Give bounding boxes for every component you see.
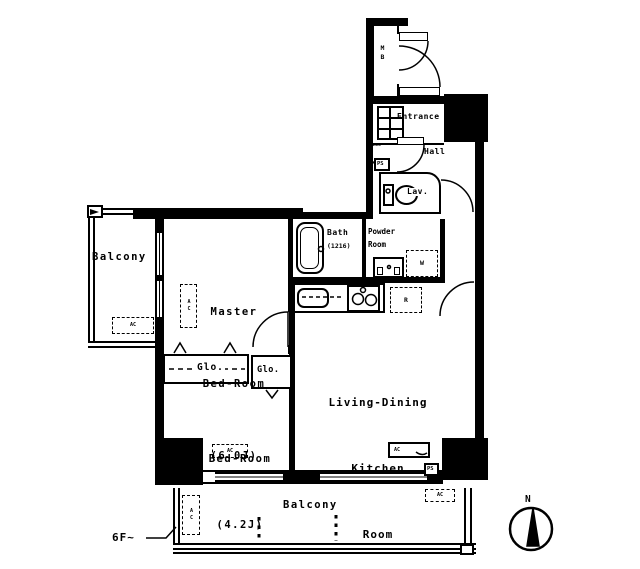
shoes-box-label: Shoes Box — [366, 130, 381, 178]
ac-unit-box: AC — [112, 317, 154, 334]
powder-room-line2: Room — [368, 241, 386, 249]
bathtub-inner — [300, 227, 319, 269]
door-leaf — [399, 87, 440, 96]
balcony-rail — [178, 488, 180, 545]
washer-pan-foot — [394, 267, 400, 275]
balcony-rail — [173, 488, 175, 545]
bath-size-label: (1216) — [326, 243, 351, 250]
folding-door-mark — [174, 343, 186, 353]
wall-segment — [293, 212, 373, 219]
washing-machine-box: W — [406, 250, 438, 277]
washer-pan-foot — [377, 267, 383, 275]
wall-segment — [440, 219, 445, 277]
door-leaf — [397, 137, 424, 145]
window — [155, 233, 164, 275]
toilet-tank — [383, 184, 394, 206]
refrigerator-box: R — [390, 287, 422, 313]
washing-machine-label: W — [420, 260, 424, 267]
balcony-rail — [93, 209, 95, 343]
bedroom-line1: Bed-Room — [190, 448, 290, 470]
master-line2: Bed-Room — [188, 372, 280, 396]
wall-segment — [133, 208, 303, 219]
door-arc-lavatory — [441, 180, 473, 212]
door-arc-entrance — [399, 46, 440, 87]
compass-circle — [510, 508, 552, 550]
wall-segment — [362, 219, 366, 277]
pipe-space-label: PS — [377, 162, 384, 168]
closet-main-label: Glo. — [196, 363, 225, 373]
ldk-line1: Living-Dining — [308, 392, 448, 414]
balcony-rail — [103, 208, 134, 210]
balcony-rail — [464, 488, 466, 545]
balcony-rail — [103, 213, 134, 215]
floor-note-leader-line — [146, 527, 176, 538]
door-arc-hall — [397, 145, 424, 172]
wall-segment — [366, 96, 450, 104]
floor-note-label: 6F~ — [112, 532, 135, 543]
hall-label: Hall — [424, 148, 445, 156]
door-arc — [399, 41, 428, 70]
master-line1: Master — [188, 300, 280, 324]
stove — [347, 285, 380, 312]
entrance-label: Entrance — [397, 113, 440, 121]
lavatory-label: Lav. — [406, 188, 429, 196]
shoes-box-line1: Shoes — [366, 142, 381, 148]
wall-segment — [366, 18, 374, 104]
powder-room-line1: Powder — [368, 228, 395, 236]
balcony-bottom-label: Balcony — [283, 500, 338, 511]
balcony-rail — [88, 346, 164, 348]
ldk-label: Living-Dining Kitchen Room (12.5J) — [308, 348, 448, 569]
bedroom-size: (4.2J) — [190, 514, 290, 536]
ldk-line3: Room — [308, 524, 448, 546]
door-arc-ldk — [440, 282, 474, 316]
ac-label: AC — [130, 323, 136, 328]
compass-north-label: N — [525, 495, 531, 505]
wall-segment — [444, 94, 488, 142]
compass-needle — [527, 508, 539, 546]
closet-second-label: Glo. — [256, 366, 280, 375]
floor-plan: AC AC AC W R AC — [0, 0, 640, 569]
window — [155, 281, 164, 317]
bedroom-label: Bed-Room (4.2J) — [190, 404, 290, 569]
balcony-corner-box — [87, 205, 103, 218]
wall-segment — [442, 438, 488, 480]
balcony-foot-box — [460, 544, 474, 555]
kitchen-sink — [297, 288, 329, 308]
meter-box-label: MB — [379, 44, 386, 62]
balcony-left-label: Balcony — [92, 252, 147, 263]
refrigerator-label: R — [404, 297, 408, 304]
shoes-box-grid-line — [389, 106, 391, 140]
ldk-line2: Kitchen — [308, 458, 448, 480]
balcony-rail — [88, 209, 90, 343]
balcony-rail — [470, 488, 472, 545]
wall-segment — [475, 142, 484, 442]
balcony-rail — [88, 341, 164, 343]
bath-label: Bath — [326, 229, 349, 237]
door-leaf — [399, 32, 428, 41]
